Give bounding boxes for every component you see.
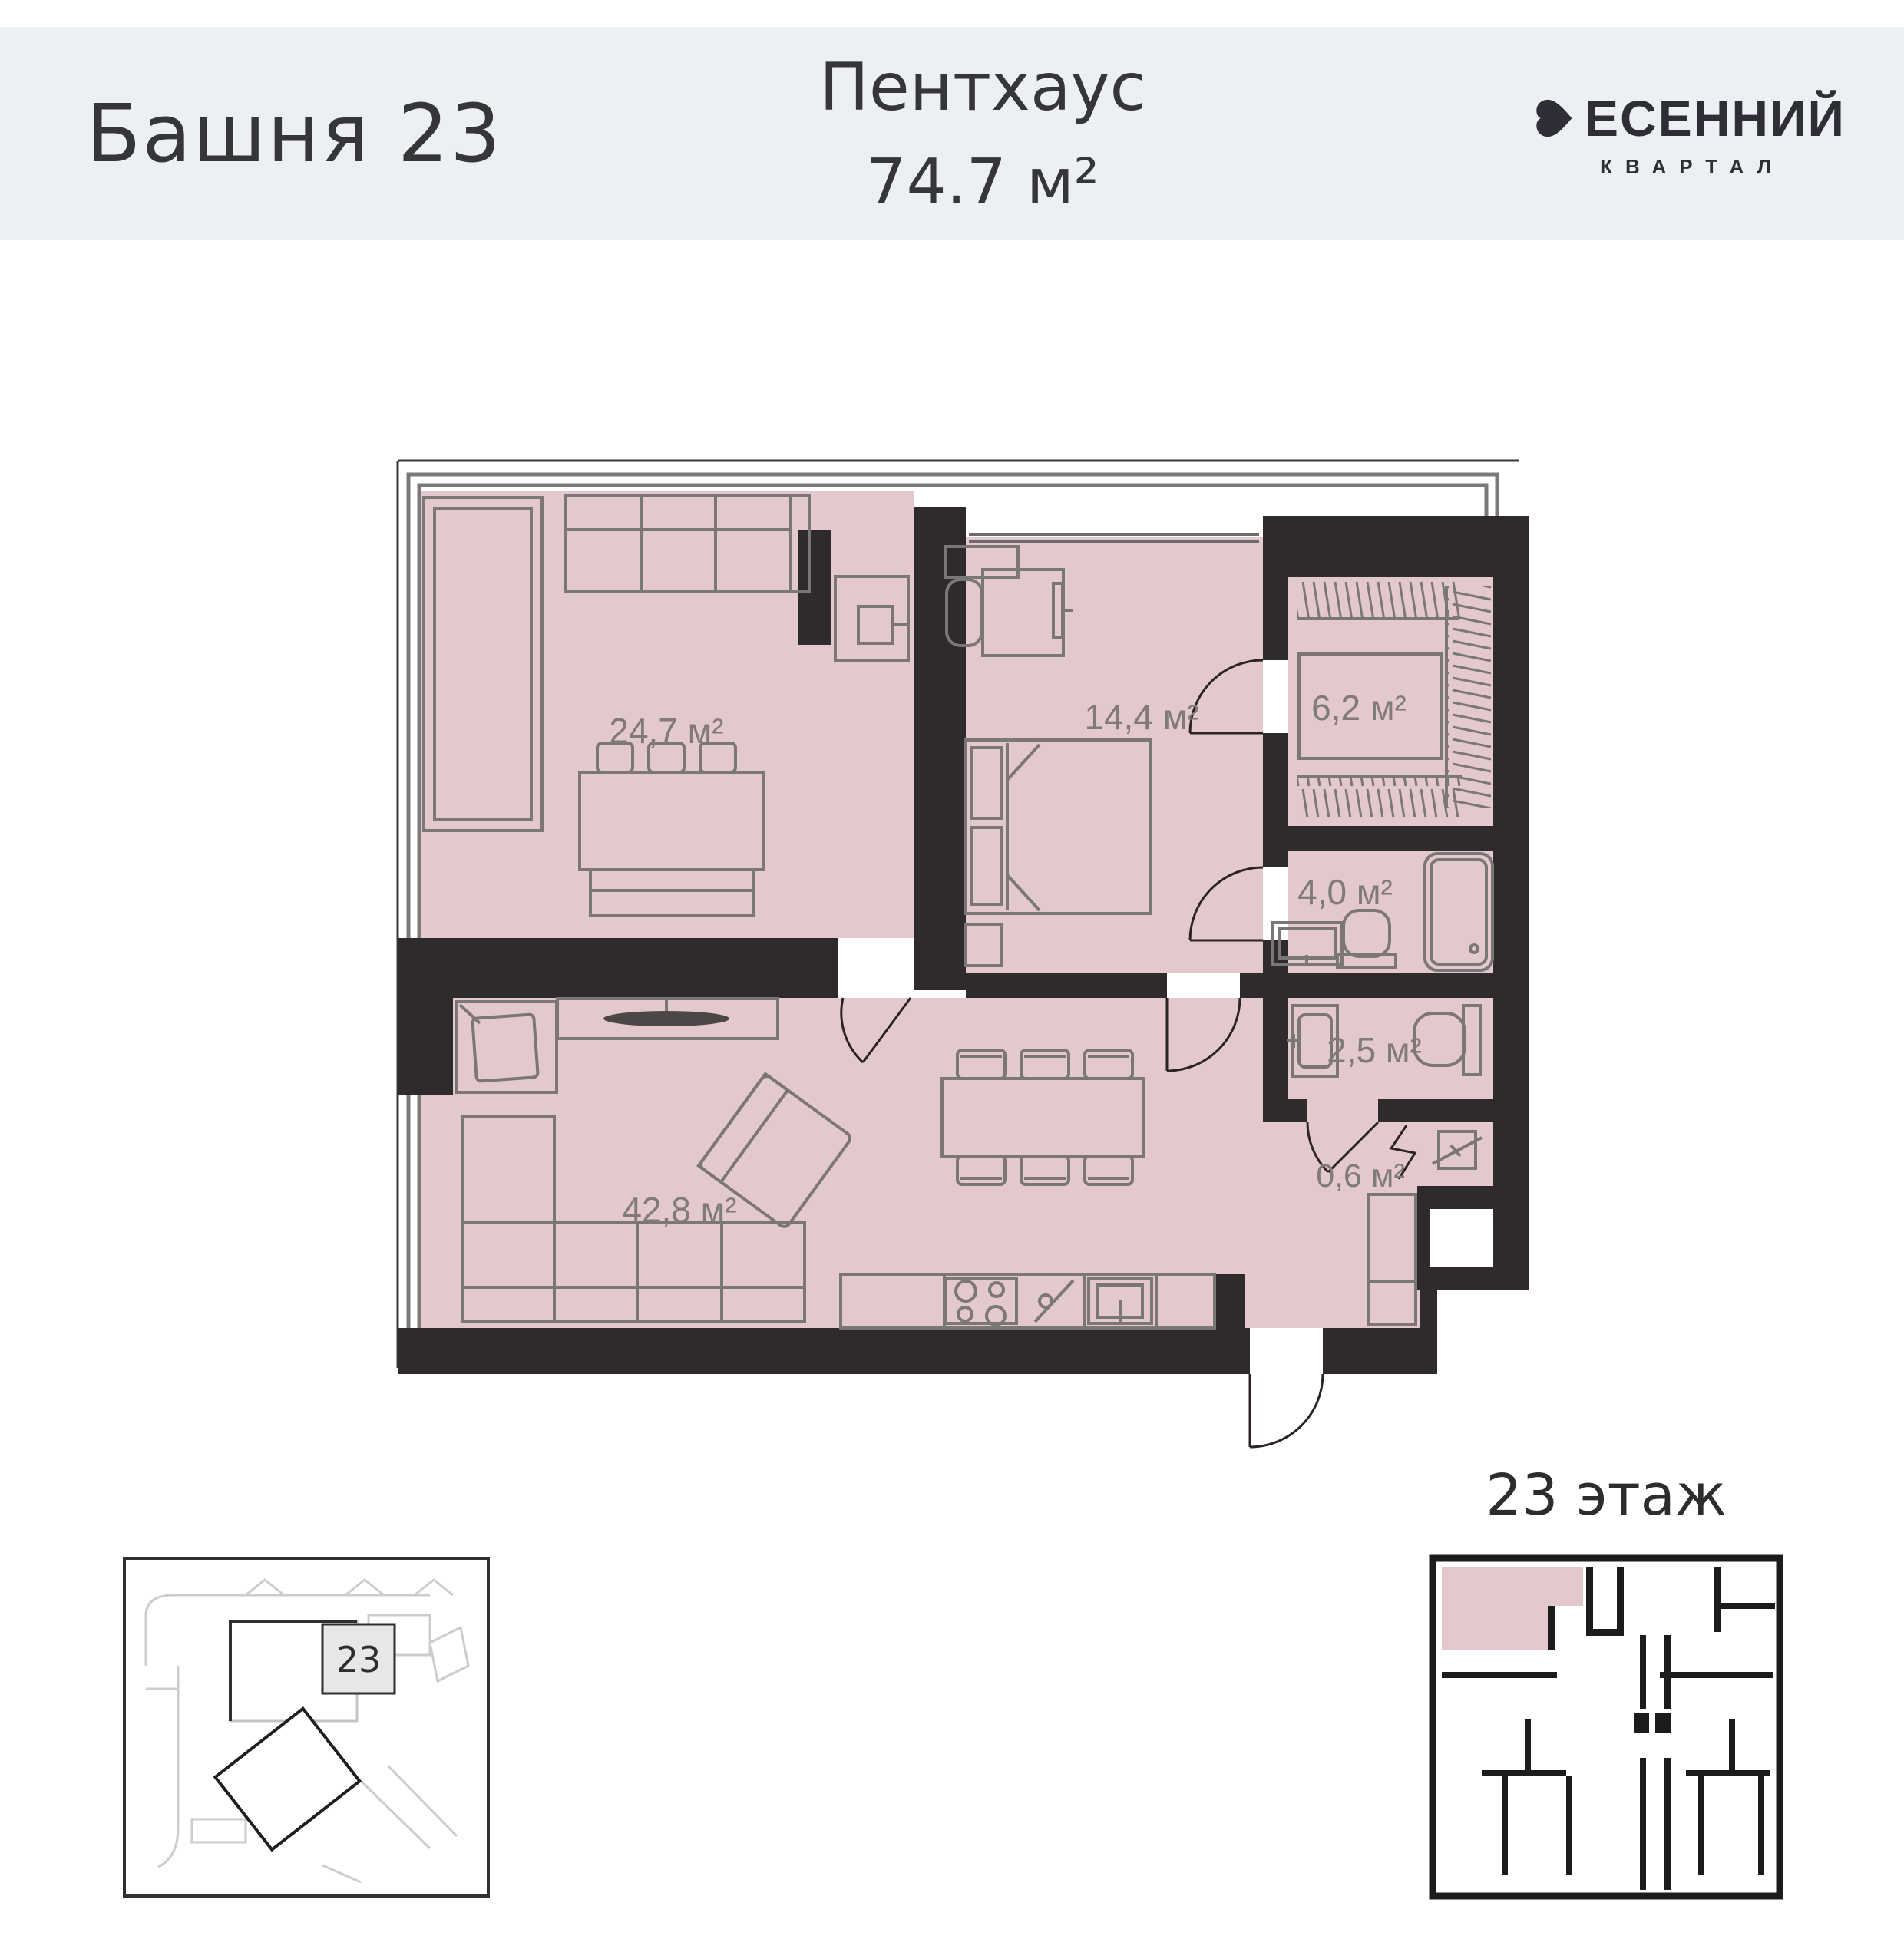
wall — [398, 938, 838, 998]
label-laundry: 2,5 м² — [1327, 1030, 1422, 1070]
door-entry — [1250, 1374, 1323, 1447]
label-lounge: 24,7 м² — [609, 711, 723, 751]
wall — [1378, 1099, 1529, 1122]
label-hall: 0,6 м² — [1316, 1158, 1405, 1194]
wall — [398, 938, 453, 1095]
wall — [1263, 516, 1529, 577]
page: Башня 23 Пентхаус 74.7 м² ЕСЕННИЙ КВАРТА… — [0, 0, 1904, 1949]
room-bedroom-floor — [966, 537, 1263, 973]
wall — [1215, 1274, 1245, 1328]
wall — [1323, 1328, 1437, 1374]
wall — [398, 1328, 1250, 1374]
plan-canvas: 24,7 м² 14,4 м² 6,2 м² 4,0 м² 2,5 м² 0,6… — [0, 0, 1904, 1949]
label-bathroom: 4,0 м² — [1297, 872, 1393, 912]
wall — [1263, 1099, 1307, 1122]
label-living: 42,8 м² — [622, 1190, 736, 1230]
site-plan: 23 — [124, 1558, 488, 1896]
floor-overview-plan — [1433, 1558, 1780, 1896]
wall — [1263, 577, 1288, 660]
wall — [1263, 973, 1493, 998]
wall — [1240, 973, 1263, 998]
wall — [1417, 1186, 1529, 1209]
wall — [1420, 1290, 1437, 1328]
site-tower-number: 23 — [336, 1639, 382, 1680]
wall — [1417, 1267, 1529, 1290]
label-bedroom: 14,4 м² — [1084, 697, 1198, 737]
wall — [1417, 1209, 1430, 1267]
label-wardrobe: 6,2 м² — [1311, 688, 1407, 728]
wall — [1493, 577, 1529, 1290]
wall — [1263, 826, 1493, 851]
main-floor-plan: 24,7 м² 14,4 м² 6,2 м² 4,0 м² 2,5 м² 0,6… — [398, 461, 1529, 1447]
tv-wall-block — [798, 530, 831, 645]
wall — [966, 973, 1167, 998]
shaft-niche — [1430, 1209, 1493, 1267]
